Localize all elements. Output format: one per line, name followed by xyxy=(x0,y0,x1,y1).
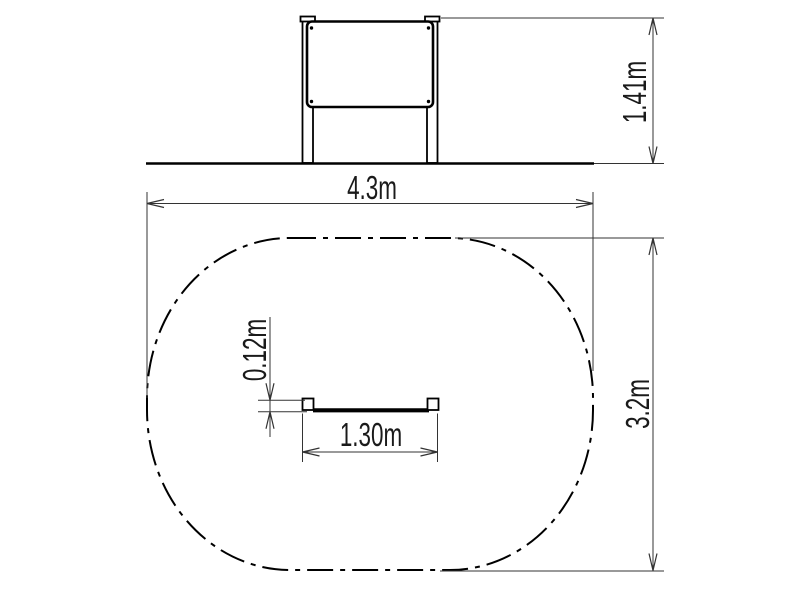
technical-drawing-page: 1.41m 4.3m xyxy=(0,0,800,600)
zone-width-dimension-label: 4.3m xyxy=(347,169,397,206)
screw-dot xyxy=(427,100,430,103)
zone-depth-dimension-label: 3.2m xyxy=(619,379,656,429)
dimension-panel-width: 1.30m xyxy=(303,414,438,463)
dimension-height: 1.41m xyxy=(441,18,664,164)
panel-width-dimension-label: 1.30m xyxy=(340,416,402,453)
dimension-zone-width: 4.3m xyxy=(147,169,593,398)
sign-plan-footprint xyxy=(303,399,439,411)
screw-dot xyxy=(310,100,313,103)
sign-panel xyxy=(307,22,433,108)
panel-depth-dimension-label: 0.12m xyxy=(236,319,273,381)
elevation-view xyxy=(146,17,594,164)
cad-drawing: 1.41m 4.3m xyxy=(0,0,800,600)
screw-dot xyxy=(427,26,430,29)
safety-zone-outline xyxy=(147,238,593,570)
screw-dot xyxy=(310,26,313,29)
height-dimension-label: 1.41m xyxy=(616,61,653,123)
dimension-panel-depth: 0.12m xyxy=(236,317,307,437)
plan-view xyxy=(147,238,593,570)
post-right-plan xyxy=(428,399,439,411)
